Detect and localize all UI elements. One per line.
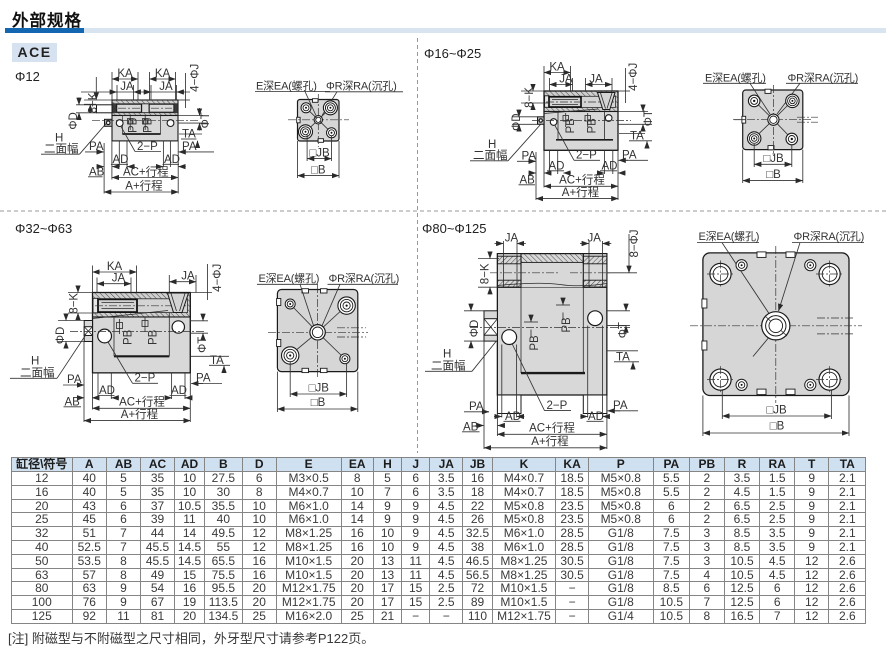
svg-text:PB: PB <box>529 335 541 351</box>
svg-text:4−ΦJ: 4−ΦJ <box>628 63 640 91</box>
svg-text:PA: PA <box>89 141 104 153</box>
svg-text:□JB: □JB <box>766 404 787 416</box>
svg-text:TA: TA <box>210 355 224 367</box>
svg-text:E深EA(螺孔): E深EA(螺孔) <box>256 80 317 93</box>
svg-text:PA: PA <box>469 401 484 413</box>
svg-text:ΦT: ΦT <box>617 322 629 338</box>
svg-text:ΦT: ΦT <box>200 112 212 128</box>
svg-text:PB: PB <box>561 317 573 333</box>
svg-text:A+行程: A+行程 <box>125 179 163 192</box>
svg-text:PB: PB <box>565 118 577 134</box>
svg-text:AC+行程: AC+行程 <box>529 421 575 434</box>
svg-text:ΦD: ΦD <box>68 112 80 129</box>
svg-text:JA: JA <box>505 232 519 244</box>
svg-text:H: H <box>31 356 39 368</box>
svg-text:□B: □B <box>770 420 785 432</box>
svg-text:8−K: 8−K <box>68 293 80 314</box>
svg-text:PB: PB <box>143 117 155 133</box>
svg-text:JA: JA <box>112 273 126 285</box>
svg-text:A+行程: A+行程 <box>531 435 569 448</box>
svg-text:ΦD: ΦD <box>511 113 523 130</box>
svg-text:PB: PB <box>127 117 139 133</box>
svg-text:AC+行程: AC+行程 <box>119 395 165 408</box>
svg-text:ΦT: ΦT <box>197 337 209 353</box>
svg-text:□JB: □JB <box>309 147 330 159</box>
svg-text:8−K: 8−K <box>524 87 536 108</box>
svg-text:□B: □B <box>311 164 326 176</box>
svg-text:JA: JA <box>589 73 603 85</box>
svg-text:JA: JA <box>181 271 195 283</box>
svg-text:KA: KA <box>107 261 123 273</box>
svg-text:2−P: 2−P <box>135 373 156 385</box>
svg-text:□B: □B <box>311 397 326 409</box>
svg-text:KA: KA <box>549 62 565 74</box>
svg-text:PA: PA <box>622 150 637 162</box>
svg-text:ΦR深RA(沉孔): ΦR深RA(沉孔) <box>329 272 400 285</box>
svg-text:PA: PA <box>613 400 628 412</box>
svg-text:ΦR深RA(沉孔): ΦR深RA(沉孔) <box>794 230 865 243</box>
svg-text:TA: TA <box>630 131 644 143</box>
svg-text:二面幅: 二面幅 <box>473 149 508 162</box>
svg-text:AC+行程: AC+行程 <box>559 173 605 186</box>
svg-text:E深EA(螺孔): E深EA(螺孔) <box>699 230 760 243</box>
svg-text:ΦT: ΦT <box>643 110 655 126</box>
svg-text:KA: KA <box>117 68 133 80</box>
svg-text:A+行程: A+行程 <box>562 186 600 199</box>
svg-text:KA: KA <box>155 68 171 80</box>
svg-text:E深EA(螺孔): E深EA(螺孔) <box>259 272 320 285</box>
svg-text:ΦR深RA(沉孔): ΦR深RA(沉孔) <box>326 80 397 93</box>
svg-text:JA: JA <box>159 81 173 93</box>
svg-text:二面幅: 二面幅 <box>431 360 466 373</box>
svg-text:JA: JA <box>559 73 573 85</box>
svg-text:PA: PA <box>522 151 537 163</box>
svg-text:JA: JA <box>120 81 134 93</box>
svg-text:□B: □B <box>766 169 781 181</box>
svg-text:PA: PA <box>67 374 82 386</box>
svg-text:8−K: 8−K <box>479 263 491 284</box>
svg-text:AC+行程: AC+行程 <box>123 165 169 178</box>
svg-text:PB: PB <box>123 329 135 345</box>
svg-text:□JB: □JB <box>309 382 330 394</box>
svg-text:PA: PA <box>182 141 197 153</box>
svg-text:2−P: 2−P <box>137 141 158 153</box>
svg-text:A+行程: A+行程 <box>121 408 159 421</box>
svg-text:二面幅: 二面幅 <box>20 367 55 380</box>
svg-text:2−P: 2−P <box>576 150 597 162</box>
svg-text:PB: PB <box>587 118 599 134</box>
svg-text:E深EA(螺孔): E深EA(螺孔) <box>705 72 766 85</box>
svg-text:ΦR深RA(沉孔): ΦR深RA(沉孔) <box>788 72 859 85</box>
svg-text:4−ΦJ: 4−ΦJ <box>190 64 202 92</box>
svg-text:H: H <box>443 349 451 361</box>
svg-text:□JB: □JB <box>763 153 784 165</box>
svg-text:4−ΦJ: 4−ΦJ <box>212 264 224 292</box>
svg-text:PA: PA <box>196 373 211 385</box>
svg-text:ΦD: ΦD <box>469 320 481 337</box>
svg-text:TA: TA <box>182 129 196 141</box>
svg-text:二面幅: 二面幅 <box>44 143 79 156</box>
svg-text:2−P: 2−P <box>547 400 568 412</box>
svg-text:8−K: 8−K <box>87 92 99 113</box>
svg-text:JA: JA <box>587 232 601 244</box>
svg-text:8−ΦJ: 8−ΦJ <box>629 229 641 257</box>
svg-text:ΦD: ΦD <box>55 327 67 344</box>
svg-text:PB: PB <box>148 329 160 345</box>
svg-text:TA: TA <box>616 351 630 363</box>
